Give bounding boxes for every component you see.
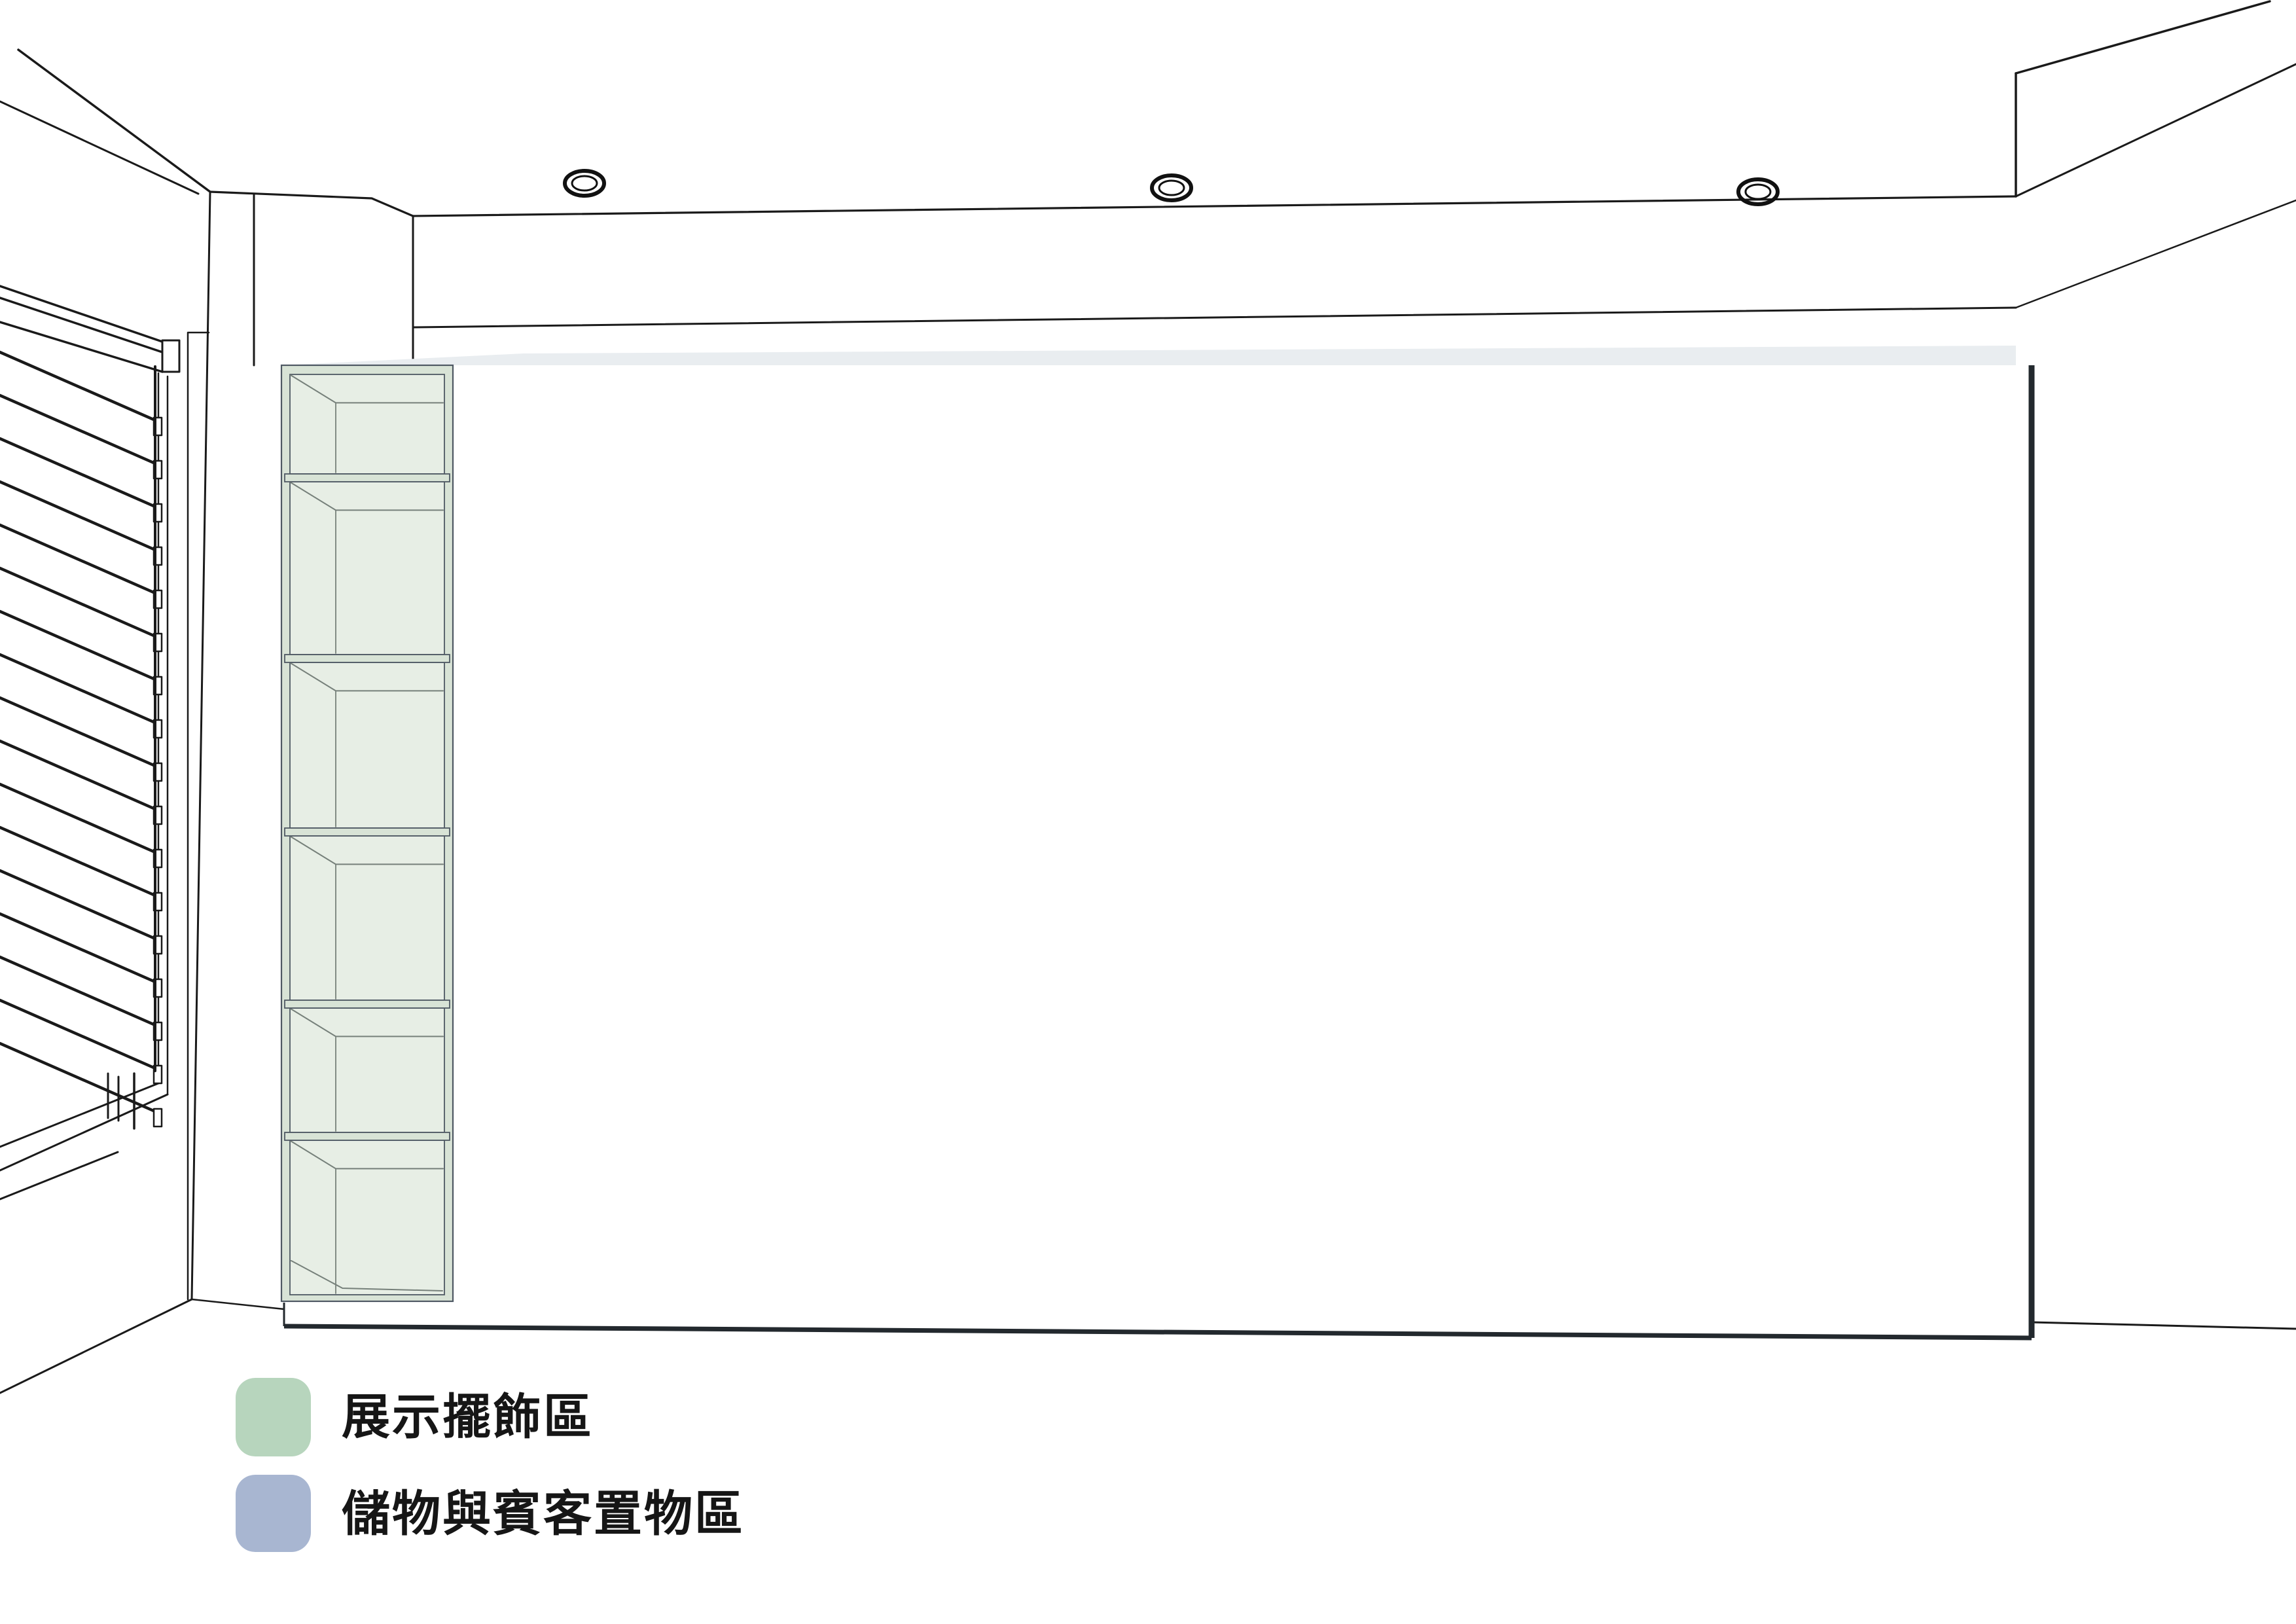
interior-elevation-drawing: 展示擺飾區 儲物與賓客置物區 [0,0,2296,1624]
window-sill-lines [0,1083,168,1199]
cabinet-base-line [284,1326,2032,1338]
blinds-valance [0,286,162,372]
ceiling-corner-left-line [18,50,210,192]
blinds-valance-endcap [162,340,179,372]
blinds-slats [0,352,162,1127]
floor-right-line [2032,1322,2296,1329]
ceiling-lights [565,171,1778,204]
right-wall-top-line [2016,64,2296,196]
wall-corner-left-line [192,192,210,1299]
soffit-bottom-line [413,308,2016,327]
ceiling-corner-right-line [2016,1,2270,73]
cabinet-column-1 [281,365,453,1301]
downlight-icon [1152,175,1191,200]
floor-front-left-line [192,1299,284,1309]
legend-label-display: 展示擺飾區 [342,1390,594,1444]
floor-corner-left-line [0,1299,192,1393]
wall-top-edge [210,192,413,216]
legend-label-storage: 儲物與賓客置物區 [342,1487,745,1541]
blinds-lift-cords [108,1074,118,1121]
legend-swatch-storage [236,1475,311,1552]
right-wall-soffit-line [2016,200,2296,308]
window-blinds [0,286,179,1199]
legend: 展示擺飾區 儲物與賓客置物區 [236,1378,745,1552]
legend-swatch-display [236,1378,311,1456]
cabinet [281,365,453,1301]
ceiling-corner-left-line2 [0,101,198,194]
cabinet-edges [284,365,2032,1338]
downlight-icon [565,171,604,196]
slat-endcap [154,1109,162,1127]
cabinet-top-face [281,346,2016,365]
